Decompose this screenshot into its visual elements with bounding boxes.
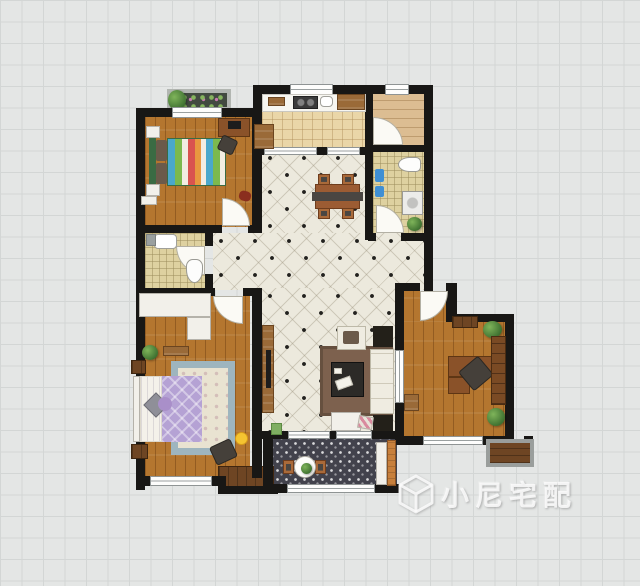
window	[336, 431, 372, 439]
monitor	[228, 121, 241, 129]
window	[395, 350, 404, 403]
window	[172, 107, 222, 118]
nightstand	[131, 360, 146, 374]
window	[327, 147, 360, 155]
plant	[142, 345, 158, 360]
towel	[375, 169, 384, 182]
washing-machine	[402, 191, 423, 215]
flower-ledge	[486, 439, 534, 467]
wall	[365, 94, 373, 240]
side-table	[373, 326, 393, 347]
kitchen-cabinet	[337, 94, 365, 110]
smiley-rug	[235, 432, 248, 445]
window	[288, 431, 330, 439]
wall	[205, 233, 213, 246]
table-runner	[312, 192, 363, 201]
nightstand	[146, 126, 160, 138]
dining-chair	[342, 208, 354, 219]
tv	[266, 350, 271, 388]
balcony-chair	[315, 460, 326, 474]
toilet	[398, 157, 421, 172]
wall	[317, 147, 327, 155]
shower-fixture	[146, 234, 156, 246]
kitchen-sink	[320, 96, 333, 107]
cabinet	[404, 394, 419, 411]
bench	[163, 346, 189, 356]
bathroom-sink	[154, 234, 177, 249]
wall	[136, 225, 222, 233]
pillow	[156, 163, 167, 184]
wall	[368, 145, 425, 152]
plant	[487, 408, 505, 426]
pillow	[158, 397, 172, 411]
wall	[368, 233, 376, 241]
door-mat	[271, 423, 282, 435]
stove	[293, 96, 318, 109]
cutting-board	[268, 97, 285, 106]
wall	[505, 314, 514, 445]
remote	[334, 368, 342, 374]
wall	[263, 431, 273, 493]
dresser	[141, 196, 157, 205]
fridge	[254, 124, 274, 149]
plant	[301, 463, 312, 474]
window	[150, 476, 212, 486]
wardrobe	[139, 293, 211, 317]
wall	[248, 225, 262, 233]
wall-shelf	[452, 316, 478, 328]
nightstand	[146, 184, 160, 196]
wall	[401, 233, 425, 241]
side-table	[373, 415, 393, 431]
wall	[404, 283, 420, 291]
towel	[375, 186, 384, 197]
floorplan-canvas: 小尼宅配	[0, 0, 640, 586]
cube-logo-icon	[394, 472, 438, 516]
wall	[243, 288, 262, 296]
pillow	[156, 140, 167, 161]
bookshelf	[491, 336, 506, 405]
balcony-cabinet	[376, 442, 387, 485]
sofa	[370, 349, 394, 414]
watermark: 小尼宅配	[394, 472, 577, 516]
nightstand	[131, 444, 148, 459]
plant	[407, 217, 422, 231]
hallway-floor	[213, 233, 424, 290]
wall	[360, 147, 373, 155]
wall	[424, 94, 433, 291]
window	[287, 484, 375, 493]
wardrobe	[187, 317, 211, 340]
window	[423, 436, 483, 445]
balcony-chair	[283, 460, 294, 474]
door-mat	[357, 415, 374, 430]
wall	[252, 296, 262, 478]
watermark-text: 小尼宅配	[441, 474, 577, 514]
dining-chair	[318, 208, 330, 219]
console-table	[331, 412, 361, 431]
window	[385, 84, 409, 95]
armchair-cushion	[343, 331, 359, 344]
bed-headboard	[133, 376, 140, 442]
balcony-door	[387, 440, 396, 486]
bed-headboard	[149, 138, 156, 186]
